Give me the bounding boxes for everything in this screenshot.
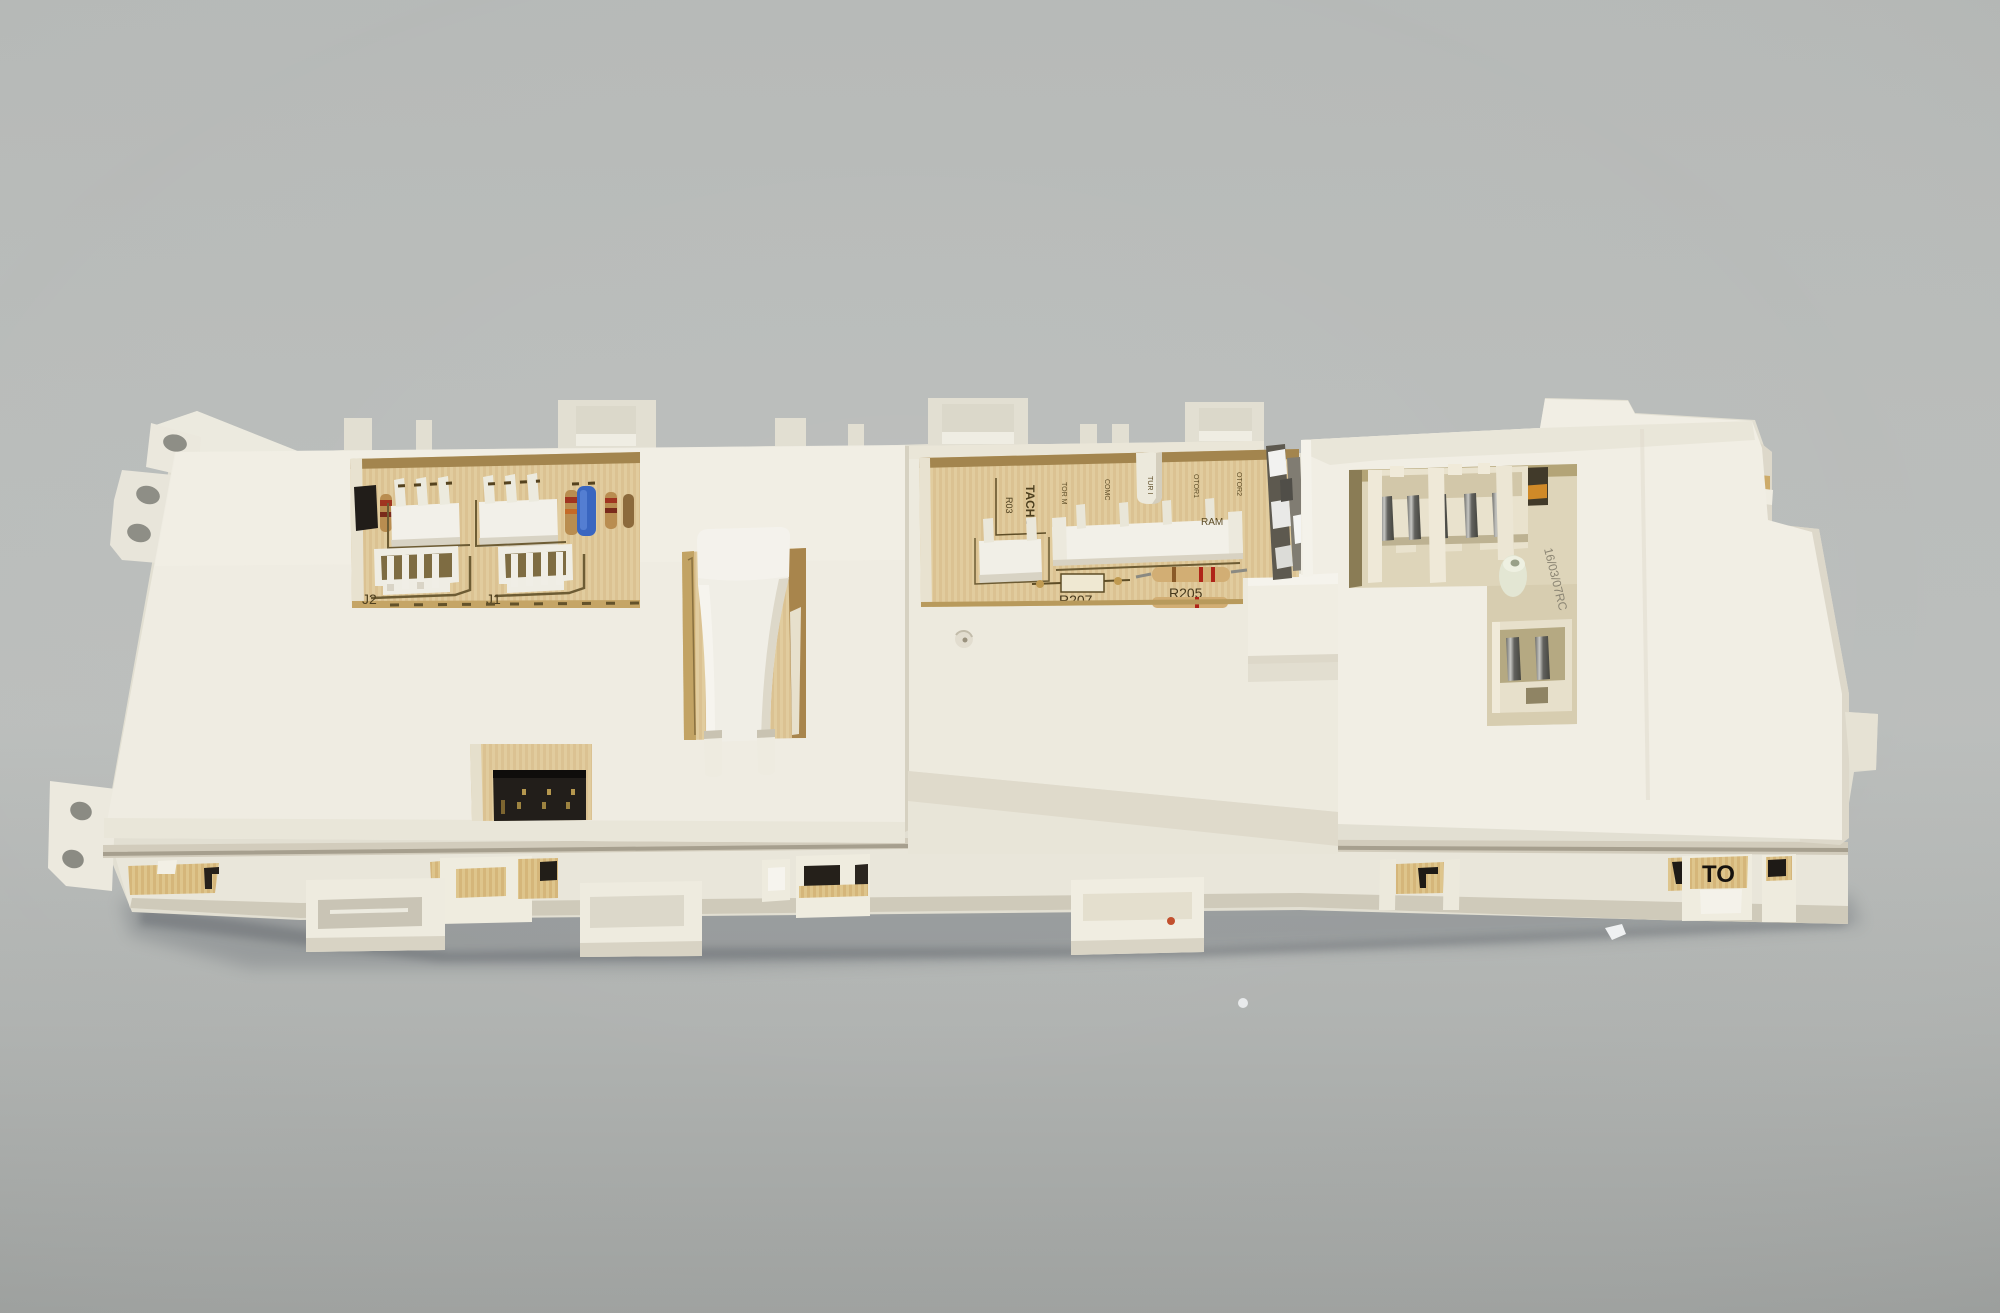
svg-text:COMC: COMC (1103, 479, 1110, 500)
svg-text:TOR M: TOR M (1060, 482, 1067, 505)
svg-text:OTOR2: OTOR2 (1235, 472, 1242, 496)
svg-text:RAM: RAM (1201, 517, 1223, 528)
svg-text:R03: R03 (1004, 497, 1014, 514)
svg-text:J2: J2 (362, 591, 377, 607)
svg-text:TO: TO (1702, 861, 1735, 888)
svg-text:TUR I: TUR I (1146, 476, 1153, 494)
svg-text:OTOR1: OTOR1 (1192, 474, 1199, 498)
